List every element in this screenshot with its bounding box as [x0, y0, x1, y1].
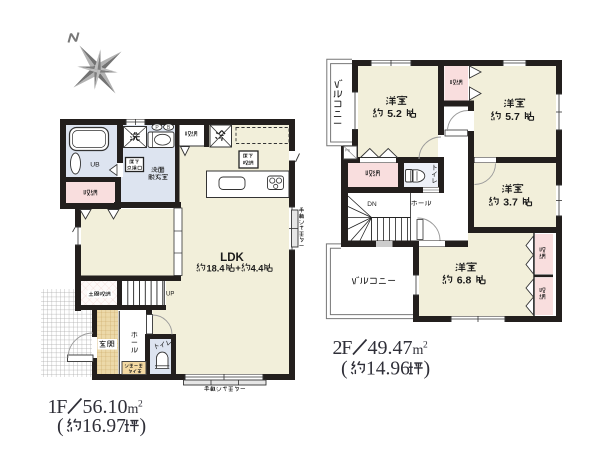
svg-text:2: 2 — [138, 400, 143, 410]
svg-text:LDK: LDK — [220, 252, 244, 264]
svg-text:4.4: 4.4 — [251, 264, 265, 274]
svg-text:3.7: 3.7 — [503, 197, 518, 209]
svg-text:): ) — [424, 358, 431, 380]
svg-text:18.4: 18.4 — [207, 264, 226, 274]
svg-text:16.97: 16.97 — [82, 416, 126, 437]
svg-text:UP: UP — [166, 292, 174, 298]
svg-text:): ) — [140, 415, 147, 437]
svg-text:14.96: 14.96 — [366, 359, 410, 380]
svg-text:5.2: 5.2 — [387, 108, 402, 120]
svg-text:2: 2 — [423, 341, 428, 351]
svg-text:5.7: 5.7 — [505, 111, 520, 123]
svg-text:m: m — [128, 402, 139, 417]
svg-text:UB: UB — [90, 162, 100, 169]
svg-text:m: m — [413, 343, 424, 358]
svg-text:56.10: 56.10 — [83, 396, 128, 418]
svg-text:6.8: 6.8 — [457, 275, 472, 287]
svg-text:2F: 2F — [333, 337, 353, 359]
svg-text:(: ( — [341, 358, 348, 380]
svg-text:PS: PS — [345, 149, 351, 153]
svg-text:DN: DN — [367, 201, 377, 208]
svg-text:(: ( — [57, 415, 64, 437]
svg-text:49.47: 49.47 — [368, 337, 413, 359]
svg-text:+: + — [235, 263, 240, 273]
